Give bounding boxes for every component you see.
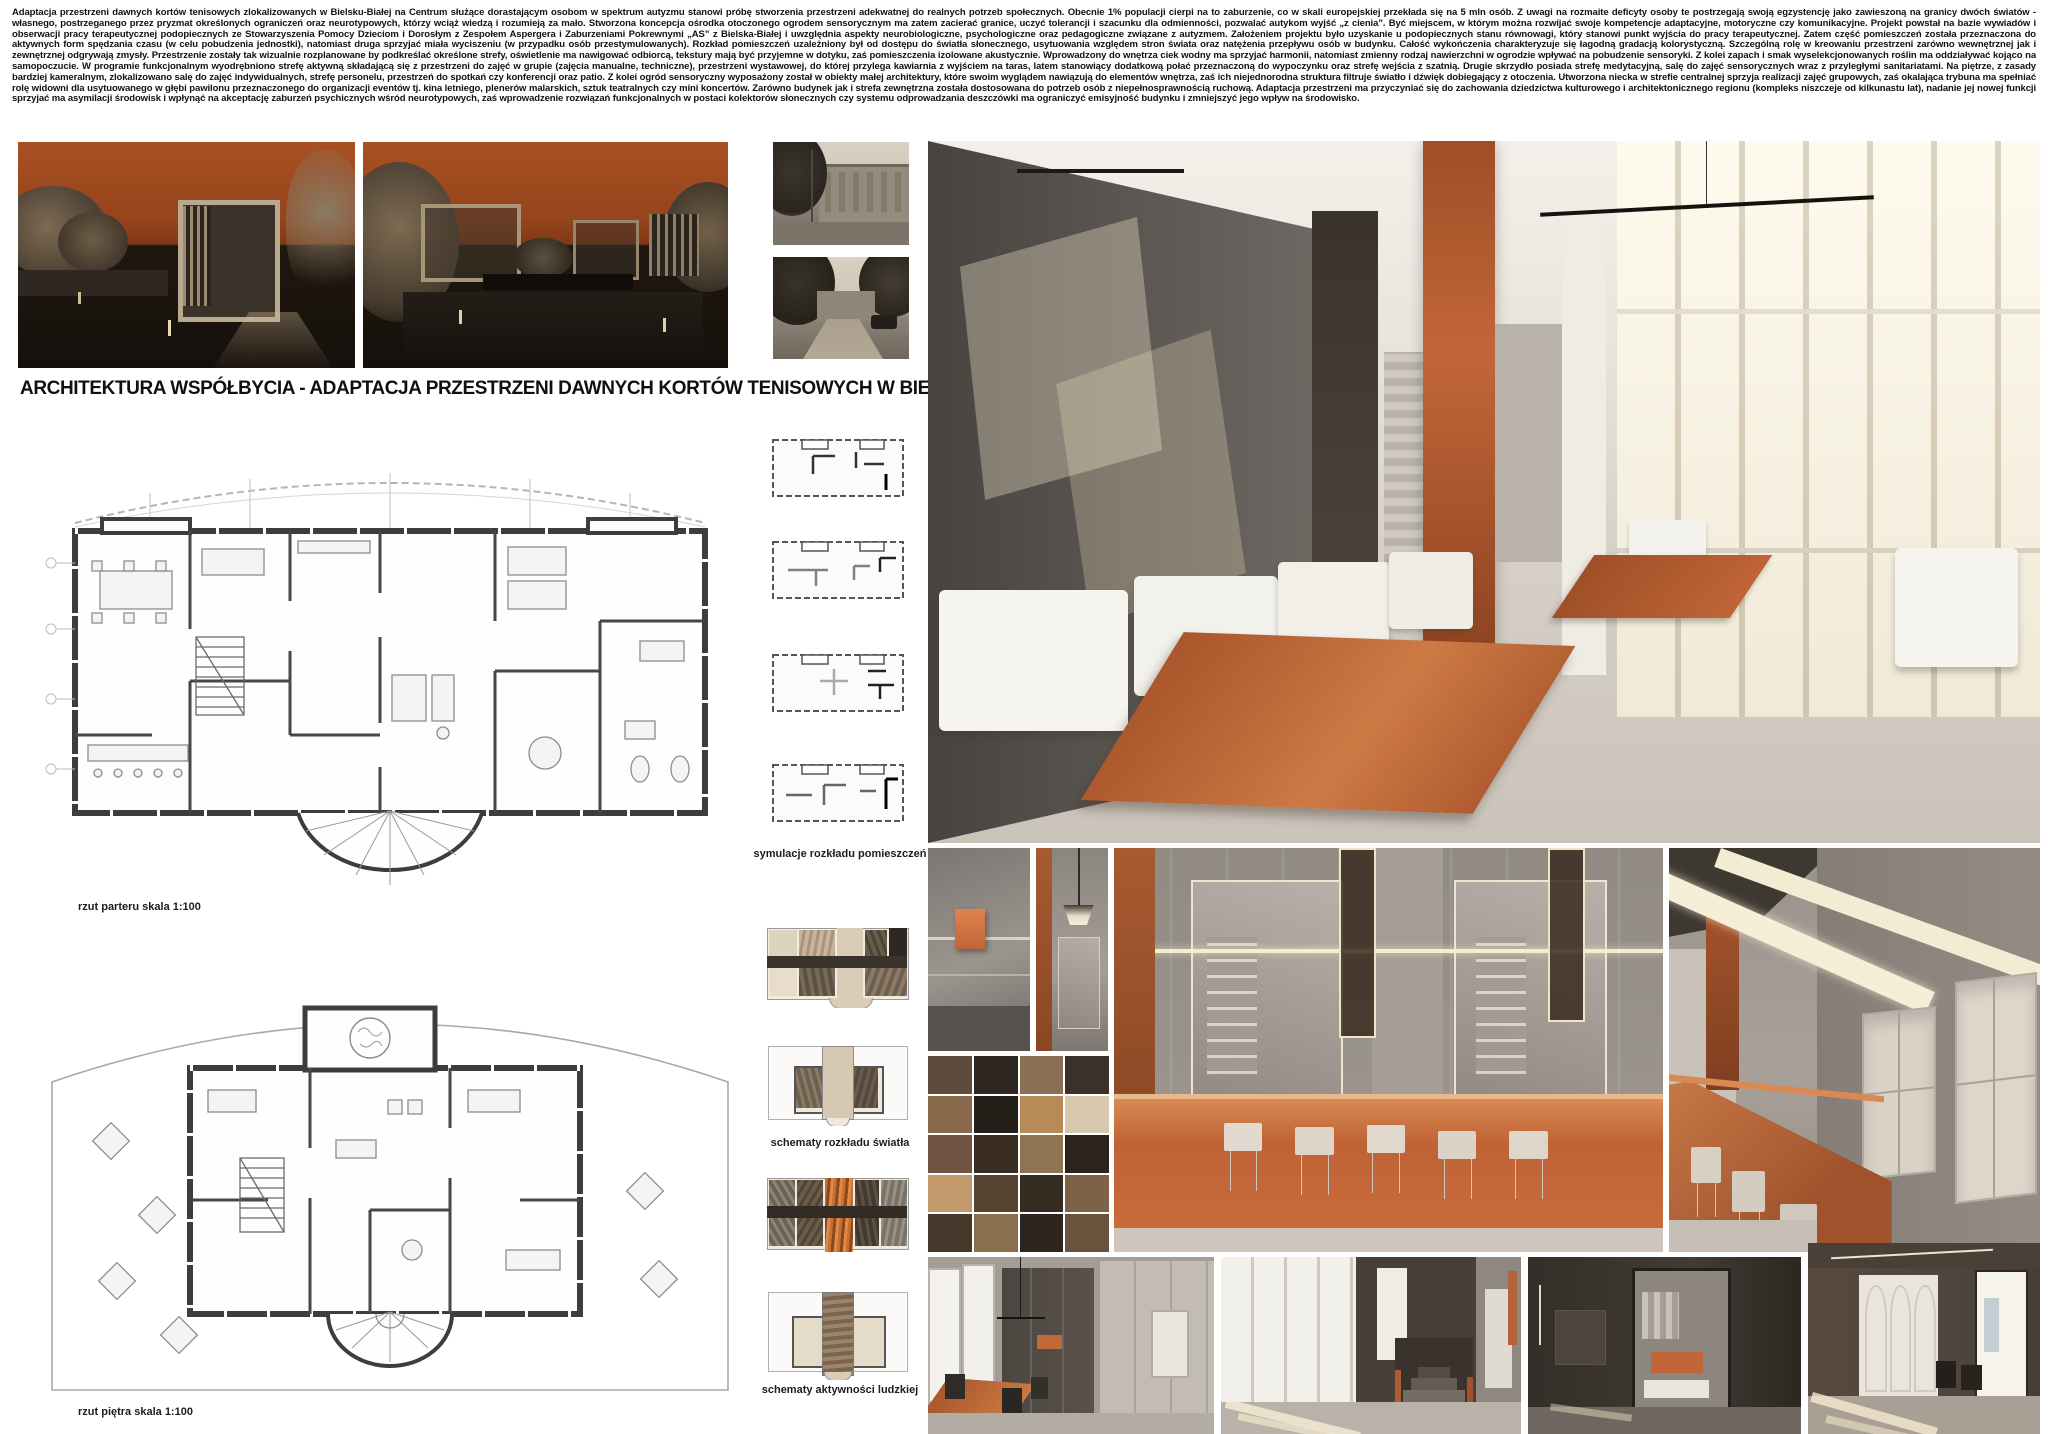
counter (928, 1006, 1030, 1051)
light-post (663, 318, 666, 332)
ground-floor-plan-drawing (40, 423, 740, 898)
first-floor-caption: rzut piętra skala 1:100 (78, 1406, 193, 1420)
room-simulations-caption: symulacje rozkładu pomieszczeń (752, 848, 928, 862)
hanging-glass-panel (1339, 848, 1376, 1038)
white-partition (1859, 1275, 1938, 1397)
interior-render-bar-perspective (1669, 848, 2040, 1252)
bar-stool (1732, 1171, 1765, 1211)
site-photo-2 (773, 257, 909, 359)
presentation-board: Adaptacja przestrzeni dawnych kortów ten… (0, 0, 2048, 1434)
window-grid (825, 172, 905, 212)
tree (286, 150, 355, 300)
window (1151, 1310, 1189, 1378)
orange-sliver (1508, 1271, 1517, 1345)
ground-floor-caption: rzut parteru skala 1:100 (78, 901, 201, 915)
floor (1669, 1220, 1817, 1252)
interior-render-stairs (1221, 1257, 1521, 1434)
back-wall (1495, 324, 1562, 563)
interior-render-workroom (928, 1257, 1214, 1434)
floor (1114, 1228, 1663, 1252)
first-floor-plan (40, 950, 740, 1402)
lamp-line (1539, 1285, 1541, 1345)
wall-niche (1862, 1006, 1936, 1179)
bar-stool (1224, 1123, 1262, 1151)
detail-render-lamp (1036, 848, 1108, 1051)
bar-stool (1509, 1131, 1547, 1159)
linear-lamp (1017, 169, 1184, 173)
collage-grid (928, 1056, 1109, 1252)
chair (1031, 1377, 1048, 1398)
building (817, 291, 875, 321)
armchair (1895, 548, 2017, 667)
intro-paragraph: Adaptacja przestrzeni dawnych kortów ten… (12, 8, 2036, 110)
doorway-mirror (1632, 1268, 1731, 1430)
pendant-lamp (1063, 905, 1093, 925)
activity-scheme-diagram-1 (763, 1172, 911, 1258)
linear-lamp (997, 1317, 1046, 1319)
car (871, 315, 897, 329)
street (773, 222, 909, 245)
mirror-reflection (1207, 937, 1256, 1074)
chair (1936, 1361, 1957, 1388)
ceiling (1808, 1243, 2040, 1268)
interior-render-bar (1114, 848, 1663, 1252)
light-schemes-caption: schematy rozkładu światła (752, 1137, 928, 1151)
material-collage (928, 1056, 1109, 1252)
light-post (459, 310, 462, 324)
room-layout-diagram-1 (768, 430, 908, 502)
bar-counter (1114, 1098, 1663, 1227)
interior-render-dark-hall (1528, 1257, 1801, 1434)
light-scheme-diagram-2 (766, 1042, 908, 1126)
bar-stool (1438, 1131, 1476, 1159)
pendant-wire (1078, 848, 1080, 909)
exterior-render-1 (18, 142, 355, 368)
ground-floor-plan (40, 423, 740, 898)
garden-wall (18, 270, 168, 296)
site-photo-1 (773, 142, 909, 245)
tree (58, 212, 128, 272)
chair (1002, 1388, 1022, 1413)
sofa (1389, 552, 1472, 629)
interior-render-main (928, 141, 2040, 843)
bright-doorway (1975, 1270, 2028, 1408)
cabinet (1555, 1310, 1606, 1365)
detail-render-shelf (928, 848, 1030, 1051)
orange-strip (1036, 848, 1052, 1051)
bar-counter-top (1114, 1094, 1663, 1099)
pavilion-slats (183, 206, 211, 306)
bar-stool (1691, 1147, 1721, 1183)
shelf (928, 974, 1030, 976)
orange-box (955, 909, 986, 950)
activity-schemes-caption: schematy aktywności ludzkiej (748, 1384, 932, 1398)
chair (1961, 1365, 1982, 1390)
floor (928, 1413, 1214, 1434)
pavilion-frame (421, 204, 521, 282)
room-layout-diagram-3 (768, 645, 908, 717)
hanging-glass-panel (1548, 848, 1585, 1022)
activity-scheme-diagram-2 (766, 1288, 908, 1380)
mirror-reflection (1476, 937, 1525, 1074)
bar-stool (1295, 1127, 1333, 1155)
room-layout-diagram-4 (768, 755, 908, 827)
bar-stool (1367, 1125, 1405, 1153)
pendant-wire (1020, 1257, 1021, 1317)
orange-box (1037, 1335, 1063, 1349)
interior-render-lounge (1808, 1243, 2040, 1434)
pavilion-frame (573, 220, 639, 280)
first-floor-plan-drawing (40, 950, 740, 1402)
light-scheme-diagram-1 (763, 922, 911, 1008)
water-basin (483, 274, 633, 290)
room-layout-diagram-2 (768, 532, 908, 604)
board-title: ARCHITEKTURA WSPÓŁBYCIA - ADAPTACJA PRZE… (20, 379, 1030, 400)
window-transom (1617, 309, 2040, 314)
lamp-wire (1706, 141, 1707, 204)
shrub (513, 238, 573, 278)
light-post (168, 320, 171, 336)
light-post (78, 292, 81, 304)
exterior-render-2 (363, 142, 728, 368)
orange-column (1706, 913, 1739, 1091)
slatted-screen (649, 214, 699, 276)
mirror-panel (1058, 937, 1100, 1028)
terraces (403, 292, 703, 368)
sofa (939, 590, 1128, 730)
chair (945, 1374, 965, 1399)
pole (811, 150, 813, 228)
wall-niche (1955, 972, 2037, 1204)
